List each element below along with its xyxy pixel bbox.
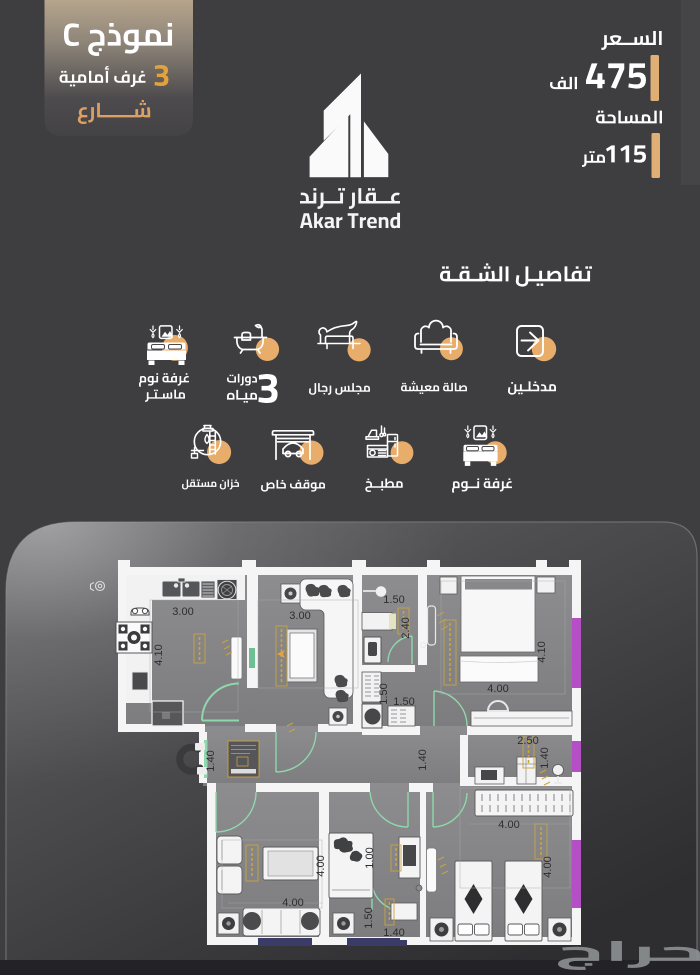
svg-text:3.00: 3.00	[289, 610, 310, 622]
svg-text:1.50: 1.50	[393, 696, 414, 708]
svg-text:2.50: 2.50	[517, 735, 538, 747]
svg-text:1.40: 1.40	[205, 750, 217, 771]
svg-text:1.00: 1.00	[364, 847, 376, 868]
svg-text:2.40: 2.40	[400, 617, 412, 638]
svg-text:3.00: 3.00	[172, 606, 193, 618]
svg-text:1.50: 1.50	[378, 683, 390, 704]
svg-text:4.10: 4.10	[153, 644, 165, 665]
svg-text:1.50: 1.50	[363, 907, 375, 928]
svg-text:4.00: 4.00	[487, 683, 508, 695]
svg-text:1.40: 1.40	[539, 747, 551, 768]
svg-text:1.40: 1.40	[383, 927, 404, 939]
svg-text:4.00: 4.00	[498, 819, 519, 831]
svg-text:1.50: 1.50	[383, 594, 404, 606]
svg-text:1.40: 1.40	[417, 749, 429, 770]
svg-text:4.00: 4.00	[315, 855, 327, 876]
svg-text:4.00: 4.00	[542, 856, 554, 877]
svg-text:4.00: 4.00	[282, 897, 303, 909]
svg-text:4.10: 4.10	[536, 641, 548, 662]
